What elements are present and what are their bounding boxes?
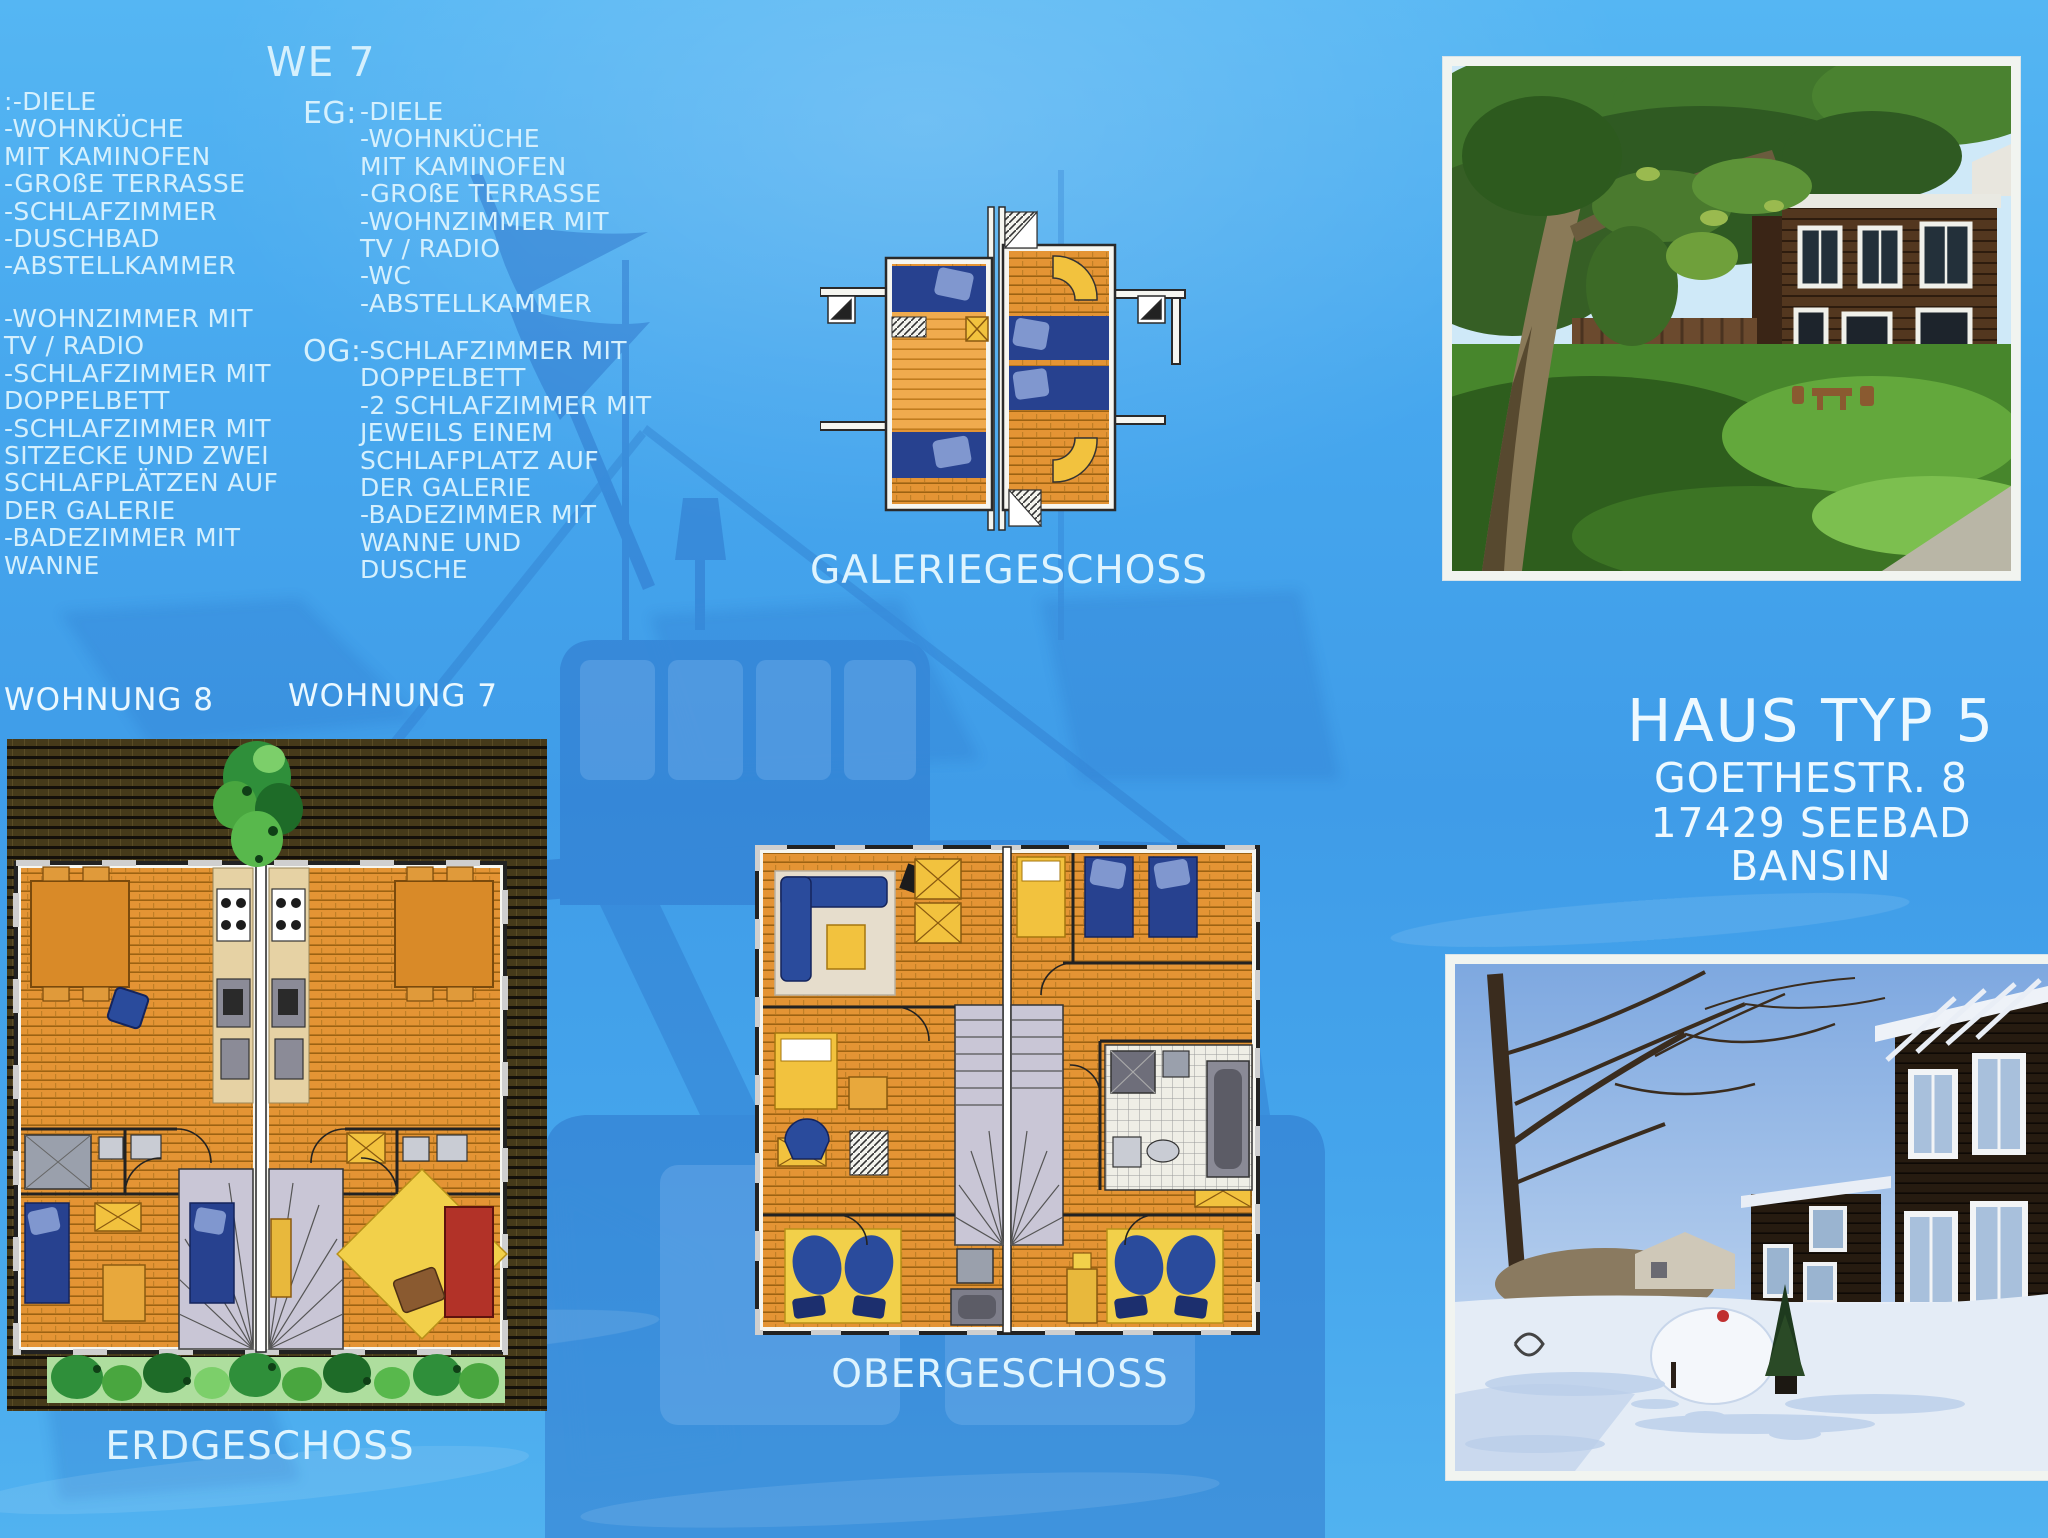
room-list-line: -SCHLAFZIMMER <box>4 198 245 225</box>
room-list-line: WANNE <box>4 552 278 579</box>
room-list-line: -WOHNKÜCHE <box>360 125 609 152</box>
galeriegeschoss-floorplan <box>820 160 1206 560</box>
we7-og-list: -SCHLAFZIMMER MITDOPPELBETT-2 SCHLAFZIMM… <box>360 337 652 584</box>
room-list-line: :-DIELE <box>4 88 245 115</box>
obergeschoss-floorplan <box>755 845 1260 1335</box>
city-line: 17429 SEEBAD BANSIN <box>1588 802 2034 887</box>
caption-obergeschoss: OBERGESCHOSS <box>810 1352 1190 1397</box>
we7-heading: WE 7 <box>266 38 376 86</box>
room-list-line: DER GALERIE <box>360 474 652 501</box>
left-column-eg-list: :-DIELE-WOHNKÜCHEMIT KAMINOFEN-GROßE TER… <box>4 88 245 280</box>
room-list-line: -SCHLAFZIMMER MIT <box>360 337 652 364</box>
room-list-line: -DIELE <box>360 98 609 125</box>
caption-erdgeschoss: ERDGESCHOSS <box>70 1424 450 1469</box>
room-list-line: -BADEZIMMER MIT <box>360 501 652 528</box>
unit-label-wohnung-8: WOHNUNG 8 <box>4 682 214 718</box>
room-list-line: DUSCHE <box>360 556 652 583</box>
og-label: OG: <box>303 334 361 369</box>
room-list-line: -WOHNZIMMER MIT <box>360 208 609 235</box>
room-list-line: JEWEILS EINEM <box>360 419 652 446</box>
room-list-line: MIT KAMINOFEN <box>360 153 609 180</box>
room-list-line: SCHLAFPLATZ AUF <box>360 447 652 474</box>
house-type-title: HAUS TYP 5 <box>1588 690 2034 751</box>
room-list-line: -WC <box>360 262 609 289</box>
erdgeschoss-floorplan <box>7 739 547 1411</box>
room-list-line: -DUSCHBAD <box>4 225 245 252</box>
room-list-line: -BADEZIMMER MIT <box>4 524 278 551</box>
room-list-line: DOPPELBETT <box>360 364 652 391</box>
room-list-line: WANNE UND <box>360 529 652 556</box>
we7-eg-list: -DIELE-WOHNKÜCHEMIT KAMINOFEN-GROßE TERR… <box>360 98 609 317</box>
eg-label: EG: <box>303 96 357 131</box>
winter-house-photo <box>1446 955 2048 1480</box>
room-list-line: -SCHLAFZIMMER MIT <box>4 415 278 442</box>
room-list-line: SITZECKE UND ZWEI <box>4 442 278 469</box>
summer-house-photo <box>1443 57 2020 580</box>
unit-label-wohnung-7: WOHNUNG 7 <box>288 678 498 714</box>
room-list-line: -WOHNZIMMER MIT <box>4 305 278 332</box>
room-list-line: DER GALERIE <box>4 497 278 524</box>
room-list-line: TV / RADIO <box>360 235 609 262</box>
room-list-line: -GROßE TERRASSE <box>360 180 609 207</box>
room-list-line: -2 SCHLAFZIMMER MIT <box>360 392 652 419</box>
room-list-line: -WOHNKÜCHE <box>4 115 245 142</box>
room-list-line: -ABSTELLKAMMER <box>4 252 245 279</box>
room-list-line: DOPPELBETT <box>4 387 278 414</box>
brochure-page: :-DIELE-WOHNKÜCHEMIT KAMINOFEN-GROßE TER… <box>0 0 2048 1538</box>
left-column-og-list: -WOHNZIMMER MITTV / RADIO-SCHLAFZIMMER M… <box>4 305 278 579</box>
room-list-line: -ABSTELLKAMMER <box>360 290 609 317</box>
street-line: GOETHESTR. 8 <box>1588 757 2034 800</box>
caption-galeriegeschoss: GALERIEGESCHOSS <box>810 548 1180 593</box>
address-block: HAUS TYP 5 GOETHESTR. 8 17429 SEEBAD BAN… <box>1588 690 2034 887</box>
room-list-line: TV / RADIO <box>4 332 278 359</box>
room-list-line: MIT KAMINOFEN <box>4 143 245 170</box>
room-list-line: -SCHLAFZIMMER MIT <box>4 360 278 387</box>
room-list-line: SCHLAFPLÄTZEN AUF <box>4 469 278 496</box>
room-list-line: -GROßE TERRASSE <box>4 170 245 197</box>
